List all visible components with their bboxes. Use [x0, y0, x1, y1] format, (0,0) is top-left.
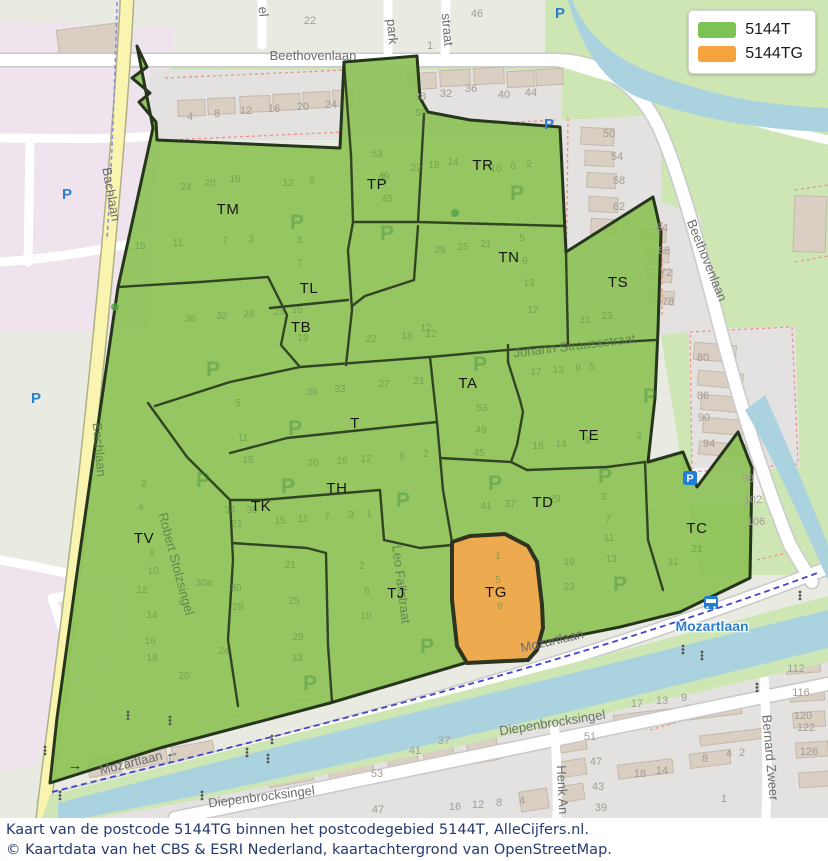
house-number: 7: [605, 514, 611, 525]
house-number: 47: [590, 756, 602, 768]
house-number: 53: [476, 403, 488, 414]
house-number: 80: [697, 352, 709, 364]
traffic-signal-icon: [169, 716, 172, 726]
street-label-beethovenlaan: Beethovenlaan: [270, 48, 357, 63]
house-number: 24: [218, 646, 230, 657]
house-number: 16: [401, 331, 413, 342]
house-number: 8: [702, 753, 708, 765]
house-number: 7: [222, 236, 228, 247]
house-number: 37: [438, 735, 450, 747]
house-number: 39: [306, 387, 318, 398]
parking-icon: P: [555, 5, 565, 22]
house-number: 1: [366, 509, 372, 520]
house-number: 14: [555, 439, 567, 450]
house-number: 39: [595, 802, 607, 814]
house-number: 25: [457, 242, 469, 253]
legend-item-5144TG: 5144TG: [698, 42, 803, 66]
oneway-arrow-icon: ↑: [166, 749, 174, 766]
legend: 5144T 5144TG: [688, 10, 816, 74]
house-number: 18: [428, 160, 440, 171]
legend-swatch-5144TG: [698, 46, 736, 62]
legend-item-5144T: 5144T: [698, 18, 803, 42]
house-number: 1: [427, 40, 433, 52]
parking-icon: P: [288, 417, 302, 440]
house-number: 12: [282, 178, 294, 189]
house-number: 43: [592, 781, 604, 793]
house-number: 2: [739, 747, 745, 759]
house-number: 4: [187, 111, 193, 123]
house-number: 31: [579, 315, 591, 326]
house-number: 18: [146, 653, 158, 664]
house-number: 6: [510, 161, 516, 172]
house-number: 16: [229, 174, 241, 185]
house-number: 9: [575, 363, 581, 374]
house-number: 21: [231, 519, 243, 530]
house-number: 32: [440, 88, 452, 100]
region-label-TE: TE: [579, 427, 599, 444]
house-number: 9: [497, 601, 503, 612]
traffic-signal-icon: [267, 754, 270, 764]
house-number: 21: [691, 544, 703, 555]
parking-icon: P: [303, 672, 317, 695]
house-number: 20: [297, 101, 309, 113]
region-label-TM: TM: [217, 201, 240, 218]
house-number: 62: [613, 201, 625, 213]
house-number: 51: [584, 731, 596, 743]
house-number: 2: [141, 479, 147, 490]
traffic-signal-icon: [127, 711, 130, 721]
house-number: 2: [423, 449, 429, 460]
house-number: 19: [563, 557, 575, 568]
house-number: 10: [147, 566, 159, 577]
house-number: 90: [698, 412, 710, 424]
house-number: 2: [359, 561, 365, 572]
traffic-signal-icon: [701, 651, 704, 661]
house-number: 1: [495, 551, 501, 562]
tree-icon: [111, 303, 119, 311]
house-number: 23: [563, 582, 575, 593]
house-number: 25: [288, 596, 300, 607]
house-number: 3: [601, 492, 607, 503]
house-number: 29: [434, 245, 446, 256]
house-number: 22: [410, 163, 422, 174]
house-number: 30a: [196, 578, 213, 589]
parking-icon: P: [643, 385, 657, 408]
house-number: 22: [304, 15, 316, 27]
street-label-mozartlaan: Mozartlaan: [675, 618, 748, 634]
house-number: 126: [800, 746, 818, 758]
house-number: 64: [656, 222, 668, 234]
house-number: 27: [378, 379, 390, 390]
house-number: 11: [173, 238, 184, 249]
house-number: 13: [552, 365, 564, 376]
house-number: 16: [144, 636, 156, 647]
house-number: 36: [465, 83, 477, 95]
bus-icon: [704, 596, 718, 609]
house-number: 12: [472, 799, 484, 811]
house-number: 14: [656, 765, 668, 777]
house-number: 41: [409, 745, 421, 757]
house-number: 3: [348, 510, 354, 521]
parking-icon: P: [473, 353, 487, 376]
caption-line-1: Kaart van de postcode 5144TG binnen het …: [6, 820, 828, 840]
parking-icon: P: [396, 489, 410, 512]
house-number: 3: [296, 235, 302, 246]
parking-icon: P: [613, 573, 627, 596]
house-number: 59: [415, 108, 427, 119]
house-number: 29: [292, 632, 304, 643]
parking-icon: P: [290, 211, 304, 234]
house-number: 17: [530, 367, 542, 378]
house-number: 24: [325, 99, 337, 111]
region-label-TB: TB: [291, 319, 311, 336]
region-label-TS: TS: [608, 274, 628, 291]
house-number: 7: [297, 258, 303, 269]
house-number: 13: [605, 554, 617, 565]
traffic-signal-icon: [246, 748, 249, 758]
region-label-TJ: TJ: [387, 585, 405, 602]
house-number: 9: [681, 692, 687, 704]
house-number: 102: [744, 494, 762, 506]
house-number: 47: [372, 804, 384, 816]
house-number: 44: [525, 87, 537, 99]
house-number: 50: [603, 128, 615, 140]
house-number: 58: [613, 175, 625, 187]
house-number: 14: [447, 157, 459, 168]
house-number: 2: [526, 159, 532, 170]
street-label-park: park: [384, 18, 401, 45]
house-number: 16: [336, 456, 348, 467]
parking-icon: P: [420, 635, 434, 658]
house-number: 5: [235, 398, 241, 409]
house-number: 53: [371, 768, 383, 780]
house-number: 11: [238, 433, 249, 444]
house-number: 6: [364, 586, 370, 597]
house-number: 78: [662, 296, 674, 308]
house-number: 21: [480, 239, 492, 250]
traffic-signal-icon: [59, 791, 62, 801]
house-number: 5: [519, 233, 525, 244]
house-number: 34: [224, 505, 236, 516]
house-number: 106: [747, 516, 765, 528]
house-number: 8: [309, 176, 315, 187]
legend-label-5144T: 5144T: [745, 21, 790, 39]
parking-icon: P: [598, 465, 612, 488]
parking-icon: P: [281, 475, 295, 498]
traffic-signal-icon: [756, 683, 759, 693]
house-number: 14: [146, 610, 158, 621]
map-caption: Kaart van de postcode 5144TG binnen het …: [0, 818, 828, 861]
house-number: 28: [243, 309, 255, 320]
house-number: 12: [240, 105, 252, 117]
region-label-TL: TL: [300, 280, 319, 297]
house-number: 116: [792, 687, 810, 699]
region-label-T: T: [350, 415, 360, 432]
house-number: 23: [601, 311, 613, 322]
house-number: 54: [611, 151, 623, 163]
house-number: 8: [496, 797, 502, 809]
oneway-arrow-icon: →: [68, 757, 83, 774]
region-label-TK: TK: [251, 498, 271, 515]
house-number: 4: [519, 795, 525, 807]
house-number: 16: [268, 103, 280, 115]
traffic-signal-icon: [271, 735, 274, 745]
house-number: 28: [232, 602, 244, 613]
house-number: 98: [742, 473, 754, 485]
house-number: 120: [794, 710, 812, 722]
house-number: 94: [703, 438, 715, 450]
parking-icon: P: [380, 222, 394, 245]
house-number: 33: [334, 384, 346, 395]
house-number: 45: [381, 194, 393, 205]
traffic-signal-icon: [44, 746, 47, 756]
region-label-TA: TA: [458, 375, 477, 392]
house-number: 11: [604, 533, 615, 544]
house-number: 15: [291, 305, 303, 316]
house-number: 68: [658, 245, 670, 257]
parking-icon: P: [196, 469, 210, 492]
house-number: 30: [230, 583, 242, 594]
region-label-TD: TD: [532, 494, 553, 511]
parking-icon: P: [488, 472, 502, 495]
parking-icon: P: [544, 116, 554, 133]
house-number: 20: [204, 178, 216, 189]
street-label-straat: straat: [439, 13, 457, 47]
caption-line-2: © Kaartdata van het CBS & ESRI Nederland…: [6, 840, 828, 860]
house-number: 20: [307, 458, 319, 469]
house-number: 21: [413, 376, 425, 387]
house-number: 17: [631, 698, 643, 710]
postcode-map-page: 2420161282151173363228243715195349455922…: [0, 0, 828, 861]
house-number: 122: [797, 722, 815, 734]
house-number: 86: [697, 390, 709, 402]
house-number: 72: [660, 267, 672, 279]
house-number: 9: [522, 256, 528, 267]
house-number: 12: [360, 454, 372, 465]
house-number: 45: [473, 448, 485, 459]
house-number: 1: [721, 793, 727, 805]
house-number: 3: [248, 234, 254, 245]
street-label-henk-an: Henk An: [554, 765, 572, 815]
house-number: 37: [504, 499, 516, 510]
house-number: 8: [214, 108, 220, 120]
parking-icon: P: [206, 358, 220, 381]
house-number: 24: [180, 182, 192, 193]
parking-icon: P: [62, 186, 72, 203]
legend-label-5144TG: 5144TG: [745, 45, 803, 63]
legend-swatch-5144T: [698, 22, 736, 38]
house-number: 28: [414, 91, 426, 103]
parking-icon: P: [686, 473, 693, 485]
map-svg: 2420161282151173363228243715195349455922…: [0, 0, 828, 818]
house-number: 36: [184, 314, 196, 325]
house-number: 112: [787, 663, 805, 675]
region-label-TH: TH: [326, 480, 347, 497]
house-number: 21: [284, 560, 296, 571]
house-number: 32: [216, 311, 228, 322]
house-number: 12: [136, 585, 148, 596]
house-number: 4: [726, 748, 732, 760]
house-number: 16: [449, 801, 461, 813]
house-number: 6: [399, 451, 405, 462]
house-number: 5: [589, 362, 595, 373]
region-label-TG: TG: [485, 584, 507, 601]
house-number: 15: [274, 516, 286, 527]
tree-icon: [451, 209, 459, 217]
traffic-signal-icon: [799, 591, 802, 601]
house-number: 40: [498, 89, 510, 101]
house-number: 7: [324, 512, 330, 523]
traffic-signal-icon: [682, 645, 685, 655]
house-number: 8: [149, 548, 155, 559]
traffic-signal-icon: [201, 791, 204, 801]
region-label-TV: TV: [134, 530, 154, 547]
region-label-TN: TN: [498, 249, 519, 266]
house-number: 41: [480, 501, 492, 512]
parking-icon: P: [510, 182, 524, 205]
house-number: 49: [475, 425, 487, 436]
region-label-TP: TP: [367, 176, 387, 193]
house-number: 33: [291, 653, 303, 664]
map-canvas: 2420161282151173363228243715195349455922…: [0, 0, 828, 818]
house-number: 53: [371, 149, 383, 160]
house-number: 11: [298, 514, 309, 525]
house-number: 18: [532, 441, 544, 452]
house-number: 20: [178, 671, 190, 682]
house-number: 22: [365, 334, 377, 345]
region-label-TR: TR: [472, 157, 493, 174]
house-number: 46: [471, 8, 483, 20]
house-number: 31: [667, 557, 679, 568]
house-number: 4: [138, 502, 144, 513]
house-number: 15: [134, 241, 146, 252]
house-number: 10: [360, 611, 372, 622]
parking-icon: P: [31, 390, 41, 407]
house-number: 18: [634, 768, 646, 780]
house-number: 17: [527, 305, 539, 316]
house-number: 12: [425, 329, 437, 340]
house-number: 13: [656, 695, 668, 707]
house-number: 2: [636, 431, 642, 442]
house-number: 24: [273, 307, 285, 318]
street-label-el: el: [256, 6, 272, 17]
house-number: 15: [242, 455, 254, 466]
house-number: 13: [523, 278, 535, 289]
region-label-TC: TC: [686, 520, 707, 537]
